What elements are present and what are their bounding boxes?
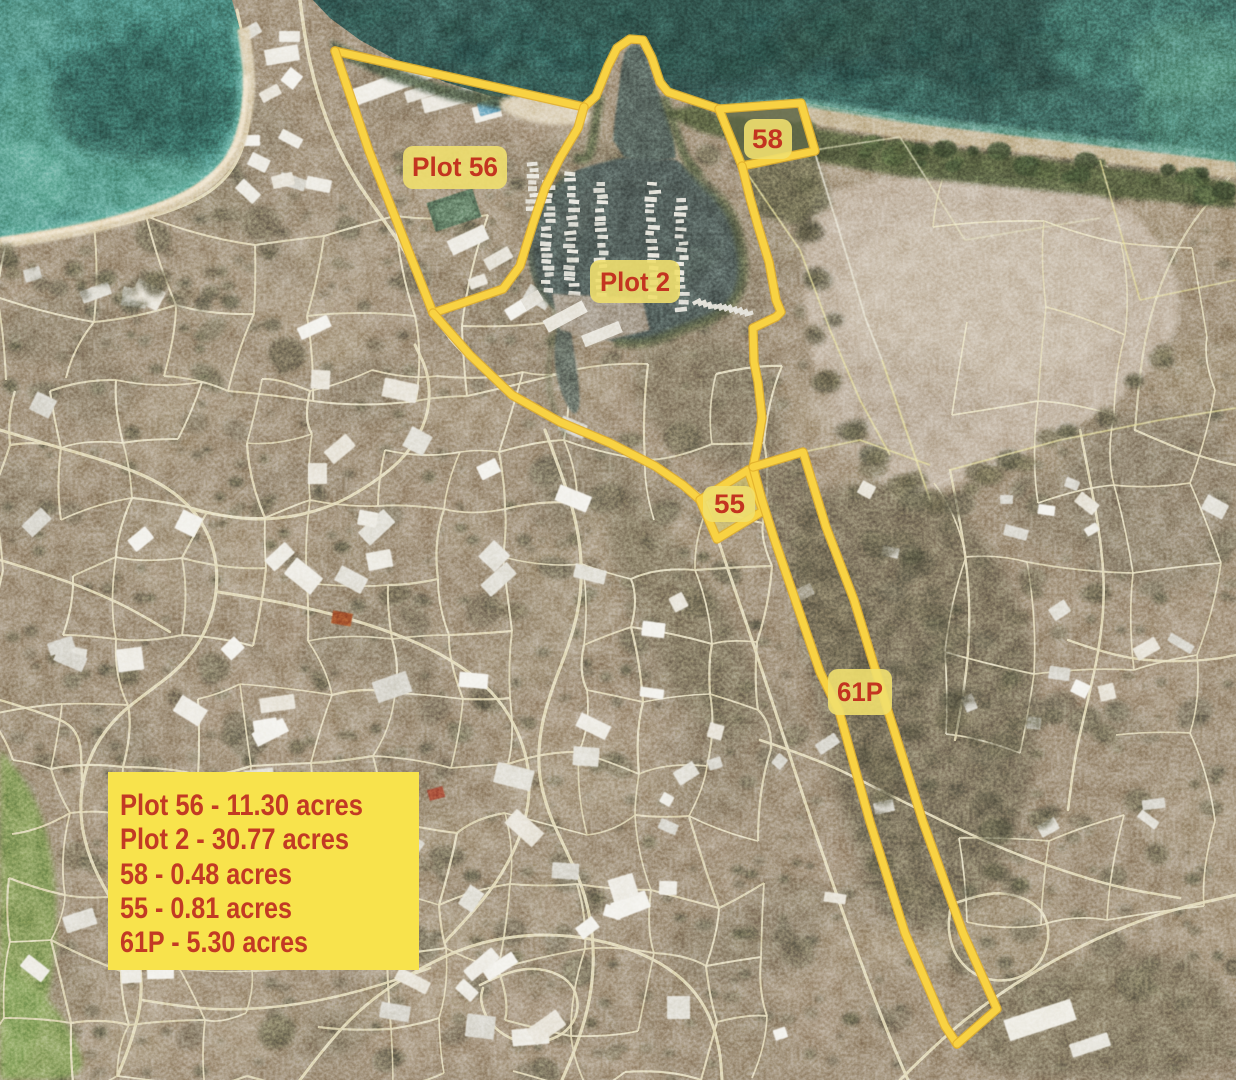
- svg-text:61P - 5.30 acres: 61P - 5.30 acres: [120, 926, 308, 959]
- svg-text:61P: 61P: [837, 677, 883, 707]
- svg-text:58: 58: [752, 124, 783, 154]
- svg-text:58 - 0.48 acres: 58 - 0.48 acres: [120, 858, 292, 891]
- svg-text:Plot 56: Plot 56: [412, 152, 498, 182]
- svg-text:Plot 2: Plot 2: [600, 267, 670, 297]
- svg-text:55 - 0.81 acres: 55 - 0.81 acres: [120, 892, 292, 925]
- svg-text:Plot 2 - 30.77 acres: Plot 2 - 30.77 acres: [120, 823, 349, 856]
- svg-text:55: 55: [714, 489, 745, 519]
- svg-text:Plot 56 - 11.30 acres: Plot 56 - 11.30 acres: [120, 789, 363, 822]
